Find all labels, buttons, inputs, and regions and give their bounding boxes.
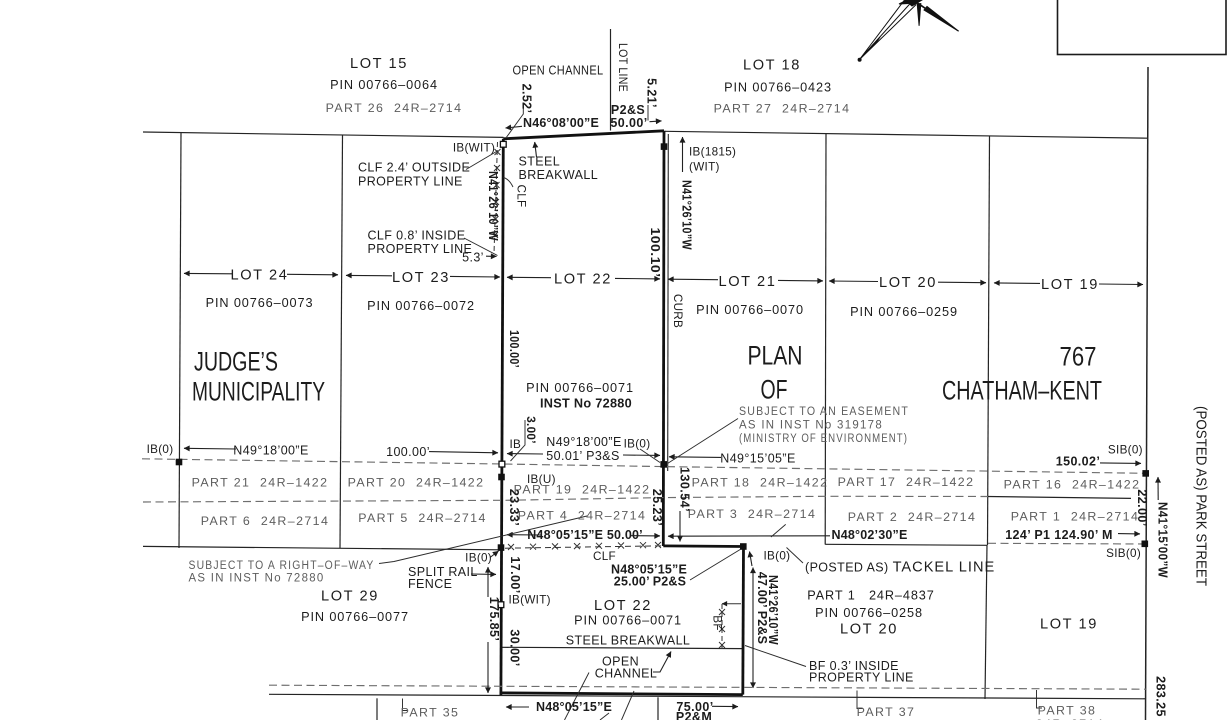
- svg-text:PART 6 24R–2714: PART 6 24R–2714: [201, 514, 329, 528]
- svg-text:PROPERTY LINE: PROPERTY LINE: [368, 242, 473, 256]
- svg-text:5.21’: 5.21’: [645, 78, 659, 108]
- svg-text:PART 20 24R–1422: PART 20 24R–1422: [348, 475, 485, 489]
- svg-text:PIN 00766–0071: PIN 00766–0071: [574, 613, 682, 627]
- svg-text:LOT 24: LOT 24: [230, 267, 288, 283]
- svg-text:SIB(0): SIB(0): [1106, 547, 1141, 560]
- svg-text:IB(0): IB(0): [764, 550, 791, 563]
- svg-text:STEEL BREAKWALL: STEEL BREAKWALL: [566, 633, 691, 647]
- svg-text:3.00’: 3.00’: [524, 416, 537, 444]
- svg-text:PART 1 24R–2714: PART 1 24R–2714: [1011, 509, 1139, 523]
- svg-text:PIN 00766–0259: PIN 00766–0259: [850, 305, 958, 319]
- svg-text:23.33’: 23.33’: [507, 489, 521, 526]
- svg-text:N49°15’05”E: N49°15’05”E: [720, 451, 795, 465]
- svg-text:124’ P1 124.90’ M: 124’ P1 124.90’ M: [1005, 528, 1113, 542]
- svg-text:PIN 00766–0073: PIN 00766–0073: [206, 296, 314, 310]
- svg-text:N46°08’00”E: N46°08’00”E: [523, 116, 599, 130]
- svg-text:IB(0): IB(0): [147, 443, 174, 456]
- svg-text:IB: IB: [510, 438, 522, 451]
- svg-text:OF: OF: [761, 375, 788, 405]
- svg-text:JUDGE’S: JUDGE’S: [194, 347, 278, 377]
- svg-text:PIN 00766–0070: PIN 00766–0070: [696, 303, 804, 317]
- svg-text:100.00’: 100.00’: [386, 445, 430, 459]
- svg-text:22.00’: 22.00’: [1135, 489, 1149, 526]
- svg-text:100.00’: 100.00’: [507, 330, 521, 368]
- svg-text:100.10’: 100.10’: [648, 228, 662, 278]
- svg-text:IB(0): IB(0): [465, 552, 492, 565]
- svg-text:CLF: CLF: [515, 185, 528, 208]
- svg-text:PART 38: PART 38: [1038, 704, 1097, 718]
- svg-text:25.23’: 25.23’: [650, 489, 664, 526]
- svg-text:LOT 18: LOT 18: [743, 58, 801, 74]
- svg-text:PART 26 24R–2714: PART 26 24R–2714: [326, 101, 463, 115]
- svg-text:N48°05’15”E: N48°05’15”E: [536, 700, 612, 714]
- svg-text:N41°26’10”W: N41°26’10”W: [680, 180, 694, 250]
- svg-text:767: 767: [1060, 342, 1097, 372]
- svg-text:P2&M: P2&M: [676, 710, 712, 720]
- svg-text:N49°18’00”E: N49°18’00”E: [546, 435, 621, 449]
- svg-text:(POSTED AS)TACKEL LINE: (POSTED AS)TACKEL LINE: [805, 560, 995, 576]
- svg-text:25.00’ P2&S: 25.00’ P2&S: [614, 574, 686, 588]
- svg-text:PART 2 24R–2714: PART 2 24R–2714: [848, 510, 976, 524]
- svg-text:OPEN CHANNEL: OPEN CHANNEL: [513, 64, 604, 78]
- svg-text:PLAN: PLAN: [748, 341, 803, 371]
- svg-text:AS IN INST No 72880: AS IN INST No 72880: [189, 571, 325, 585]
- svg-text:PART 3 24R–2714: PART 3 24R–2714: [688, 507, 816, 521]
- svg-text:STEEL: STEEL: [519, 154, 561, 168]
- svg-text:CLF 0.8’ INSIDE: CLF 0.8’ INSIDE: [368, 228, 466, 242]
- svg-text:MUNICIPALITY: MUNICIPALITY: [192, 377, 325, 407]
- svg-text:LOT 19: LOT 19: [1040, 616, 1098, 632]
- svg-text:IB(WIT): IB(WIT): [453, 142, 495, 155]
- svg-text:PART 4 24R–2714: PART 4 24R–2714: [518, 508, 646, 522]
- svg-text:2.52’: 2.52’: [520, 84, 534, 114]
- svg-text:N41°26’10”W: N41°26’10”W: [486, 171, 500, 241]
- svg-text:LOT 20: LOT 20: [879, 275, 937, 291]
- svg-text:PROPERTY LINE: PROPERTY LINE: [358, 174, 463, 188]
- svg-text:150.02’: 150.02’: [1056, 455, 1101, 469]
- svg-text:CLF: CLF: [593, 550, 616, 563]
- svg-text:PART 16 24R–1422: PART 16 24R–1422: [1004, 478, 1141, 492]
- svg-text:AS IN INST No 319178: AS IN INST No 319178: [739, 418, 883, 432]
- svg-text:CLF 2.4’ OUTSIDE: CLF 2.4’ OUTSIDE: [358, 160, 470, 174]
- svg-text:PIN 00766–0077: PIN 00766–0077: [301, 610, 409, 624]
- svg-text:30.00’: 30.00’: [508, 629, 522, 666]
- svg-text:FENCE: FENCE: [408, 577, 452, 591]
- svg-text:CHATHAM–KENT: CHATHAM–KENT: [942, 376, 1102, 406]
- svg-text:130.54’: 130.54’: [678, 467, 692, 512]
- svg-text:PIN 00766–0072: PIN 00766–0072: [367, 299, 475, 313]
- svg-text:CURB: CURB: [671, 294, 684, 328]
- svg-text:CHANNEL: CHANNEL: [595, 666, 658, 680]
- svg-text:INST No 72880: INST No 72880: [540, 396, 632, 410]
- svg-text:IB(WIT): IB(WIT): [509, 594, 551, 607]
- svg-text:50.00’: 50.00’: [610, 116, 647, 130]
- svg-text:PART 5 24R–2714: PART 5 24R–2714: [358, 511, 486, 525]
- svg-text:LOT 22: LOT 22: [554, 272, 612, 288]
- svg-text:BF: BF: [711, 615, 724, 631]
- svg-text:LOT 22: LOT 22: [594, 598, 652, 614]
- svg-text:283.25: 283.25: [1154, 676, 1168, 717]
- svg-text:PART 35: PART 35: [401, 706, 460, 720]
- svg-text:PIN 00766–0071: PIN 00766–0071: [526, 381, 634, 395]
- svg-text:SIB(0): SIB(0): [1108, 443, 1143, 456]
- svg-text:N48°02’30”E: N48°02’30”E: [832, 528, 908, 542]
- svg-text:PART 18 24R–1422: PART 18 24R–1422: [692, 476, 829, 490]
- svg-text:N41°15’00”W: N41°15’00”W: [1155, 502, 1169, 578]
- svg-text:IB(1815): IB(1815): [689, 145, 736, 158]
- svg-text:(POSTED AS) PARK STREET: (POSTED AS) PARK STREET: [1193, 406, 1210, 586]
- svg-text:IB(U): IB(U): [527, 473, 556, 486]
- svg-text:N49°18’00”E: N49°18’00”E: [233, 443, 308, 457]
- svg-text:LOT 19: LOT 19: [1041, 277, 1099, 293]
- svg-text:(MINISTRY OF ENVIRONMENT): (MINISTRY OF ENVIRONMENT): [739, 431, 908, 445]
- svg-text:IB(0): IB(0): [624, 438, 651, 451]
- svg-text:PART 27 24R–2714: PART 27 24R–2714: [714, 102, 851, 116]
- svg-text:N48°05’15”E 50.00’: N48°05’15”E 50.00’: [527, 528, 643, 542]
- svg-text:17.00’: 17.00’: [508, 556, 522, 593]
- svg-text:PART 1 24R–4837: PART 1 24R–4837: [807, 588, 934, 602]
- svg-text:LOT 20: LOT 20: [840, 621, 898, 637]
- svg-text:PROPERTY LINE: PROPERTY LINE: [809, 671, 914, 685]
- svg-text:PART 17 24R–1422: PART 17 24R–1422: [838, 475, 975, 489]
- svg-text:PART 21 24R–1422: PART 21 24R–1422: [192, 475, 329, 489]
- svg-text:LOT 29: LOT 29: [321, 589, 379, 605]
- svg-text:LOT 23: LOT 23: [392, 270, 450, 286]
- svg-text:LOT 15: LOT 15: [350, 56, 408, 72]
- svg-text:BREAKWALL: BREAKWALL: [519, 168, 599, 182]
- svg-text:PART 37: PART 37: [857, 705, 916, 719]
- svg-text:SUBJECT TO AN EASEMENT: SUBJECT TO AN EASEMENT: [739, 404, 909, 418]
- svg-text:50.01’ P3&S: 50.01’ P3&S: [546, 449, 619, 463]
- svg-text:PIN 00766–0064: PIN 00766–0064: [330, 78, 438, 92]
- svg-text:175.85’: 175.85’: [487, 597, 501, 642]
- svg-text:LOT 21: LOT 21: [718, 274, 776, 290]
- svg-text:N41°26’10”W: N41°26’10”W: [766, 575, 780, 645]
- svg-text:(WIT): (WIT): [689, 161, 720, 174]
- svg-text:LOT LINE: LOT LINE: [616, 43, 629, 92]
- svg-text:PIN 00766–0423: PIN 00766–0423: [724, 81, 832, 95]
- svg-text:PIN 00766–0258: PIN 00766–0258: [815, 606, 923, 620]
